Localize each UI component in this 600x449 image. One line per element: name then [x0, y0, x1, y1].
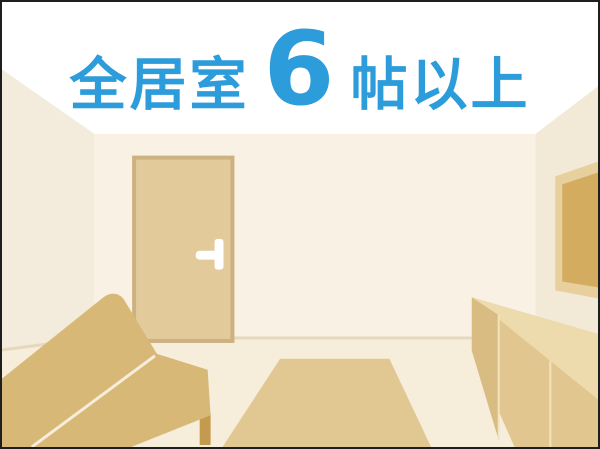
headline: 全居室 6 帖以上 [2, 2, 598, 116]
headline-prefix: 全居室 [70, 57, 250, 114]
headline-number: 6 [264, 24, 335, 116]
headline-suffix: 帖以上 [350, 57, 530, 114]
room-illustration: 全居室 6 帖以上 [0, 0, 600, 449]
wall-art [562, 172, 598, 287]
door-handle [196, 251, 222, 260]
